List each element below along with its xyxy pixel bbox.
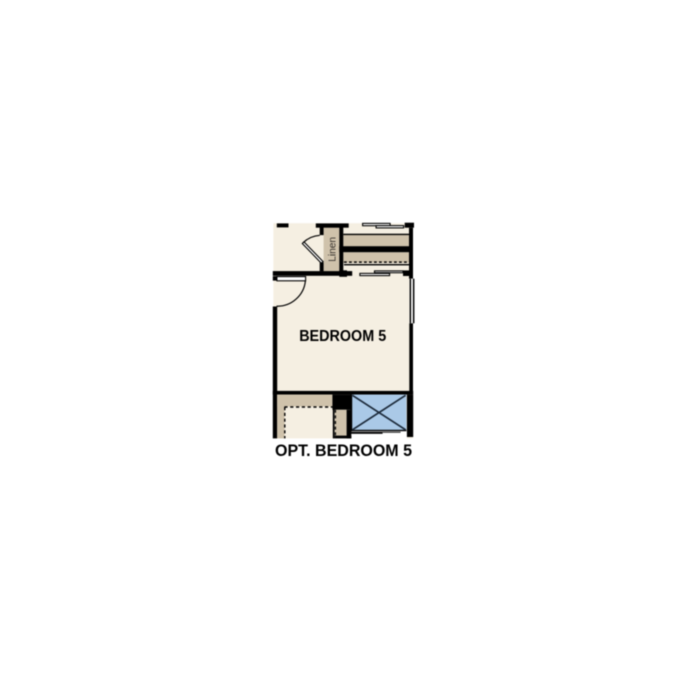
svg-text:BEDROOM 5: BEDROOM 5 xyxy=(299,328,386,345)
svg-text:OPT. BEDROOM 5: OPT. BEDROOM 5 xyxy=(275,442,412,460)
svg-text:Linen: Linen xyxy=(328,237,339,262)
